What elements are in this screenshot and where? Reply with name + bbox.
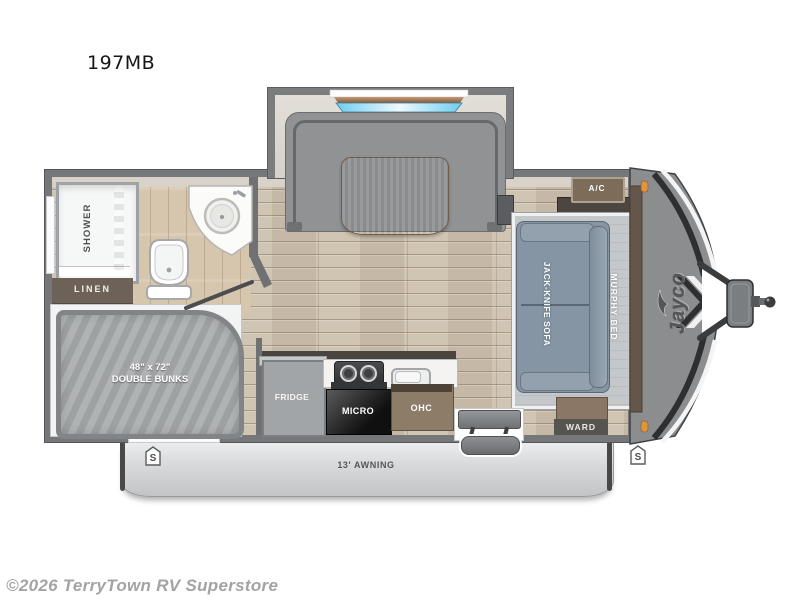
overhead-cabinet-top <box>391 384 452 392</box>
coupler <box>751 296 760 307</box>
cap-trim-strip <box>630 186 642 412</box>
bathroom-door-swing <box>180 250 280 320</box>
speaker-badge-icon: S <box>145 446 161 466</box>
page-title: 197MB <box>87 52 155 74</box>
burner-icon <box>340 365 357 382</box>
brand-logo: Jayco <box>649 258 693 348</box>
watermark: ©2026 TerryTown RV Superstore <box>6 576 278 596</box>
marker-light-icon <box>641 421 648 432</box>
brand-logo-text: Jayco <box>669 272 687 334</box>
entry-step <box>458 410 521 429</box>
speaker-badge-letter: S <box>150 453 157 464</box>
corner-sink-icon <box>186 184 256 260</box>
sofa-cushion-seam <box>521 304 589 306</box>
dinette-base <box>287 222 302 231</box>
shower-curtain <box>114 186 124 273</box>
linen-label: LINEN <box>52 284 133 294</box>
entry-step <box>461 436 520 455</box>
bunks-label: 48" x 72" DOUBLE BUNKS <box>60 362 240 386</box>
window <box>46 196 55 274</box>
front-cap-and-hitch <box>618 164 788 454</box>
awning-label: 13' AWNING <box>120 460 612 470</box>
bunks-name-text: DOUBLE BUNKS <box>60 374 240 386</box>
microwave-label: MICRO <box>326 406 390 416</box>
speaker-badge-letter: S <box>635 452 642 463</box>
speaker-badge-icon: S <box>630 445 646 465</box>
sofa-armrest <box>520 223 594 242</box>
hitch-ball-icon <box>765 297 776 308</box>
kitchen-sink-bowl <box>395 371 421 383</box>
sofa-label: JACK-KNIFE SOFA <box>541 249 553 359</box>
shower-label: SHOWER <box>82 188 94 268</box>
overhead-cabinet-label: OHC <box>391 403 452 413</box>
ac-label: A/C <box>571 184 623 193</box>
fridge-label: FRIDGE <box>262 392 322 402</box>
dinette-table <box>341 157 449 235</box>
sofa-backrest <box>589 226 608 388</box>
wardrobe-label: WARD <box>554 422 608 432</box>
burner-icon <box>360 365 377 382</box>
marker-light-icon <box>641 181 648 192</box>
floorplan-page: 197MB ©2026 TerryTown RV Superstore 13' … <box>0 0 800 600</box>
bunks-size-text: 48" x 72" <box>60 362 240 374</box>
sofa-armrest <box>520 372 594 391</box>
